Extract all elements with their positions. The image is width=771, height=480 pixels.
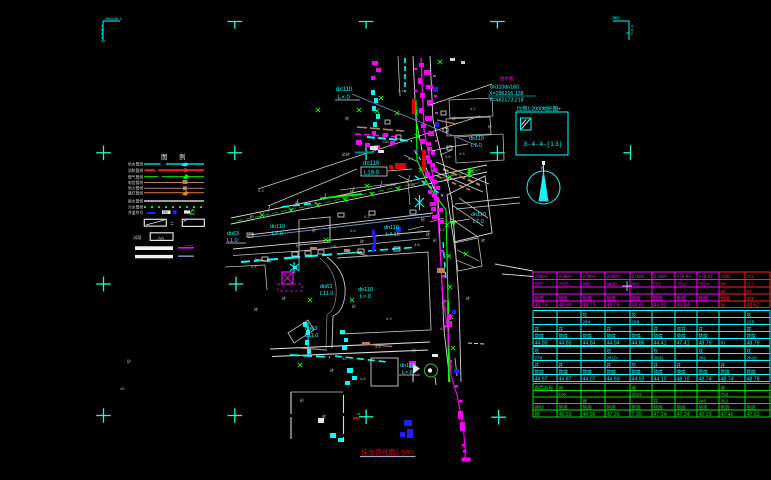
svg-text:GB: GB [383,139,389,144]
svg-text:砖: 砖 [559,385,564,392]
svg-text:管底: 管底 [654,404,664,411]
svg-text:47.41: 47.41 [677,341,690,347]
svg-text:48.62: 48.62 [747,303,760,309]
svg-text:577: 577 [535,282,543,287]
svg-text:管底: 管底 [535,369,545,376]
svg-text:管底: 管底 [721,404,731,411]
svg-text:砖: 砖 [426,231,430,237]
svg-text:44.92: 44.92 [654,303,667,309]
svg-text:井: 井 [654,398,659,405]
svg-text:752: 752 [721,392,729,397]
svg-text:坎: 坎 [632,312,637,319]
svg-text:管底: 管底 [699,295,709,302]
svg-text:4.6: 4.6 [350,228,356,233]
svg-text:井: 井 [559,326,564,333]
svg-text:管底: 管底 [632,295,642,302]
svg-text:GB: GB [331,244,337,249]
svg-text:47.29: 47.29 [699,412,712,418]
svg-text:砂: 砂 [296,242,300,248]
svg-text:962: 962 [721,399,729,404]
svg-text:给水管: 给水管 [500,75,514,82]
svg-text:砂砖: 砂砖 [342,151,350,157]
svg-text:管底: 管底 [654,333,664,340]
svg-text:管底: 管底 [677,404,687,411]
svg-text:管底: 管底 [632,369,642,376]
svg-text:砖: 砖 [345,115,349,121]
svg-text:791: 791 [654,282,662,287]
svg-text:7.09: 7.09 [632,412,642,418]
svg-text:7914: 7914 [699,282,710,287]
svg-text:38: 38 [721,289,727,294]
svg-text:761: 761 [747,274,755,279]
svg-text:管底: 管底 [632,333,642,340]
svg-text:48.79: 48.79 [699,341,712,347]
svg-text:dn63: dn63 [227,231,239,237]
svg-text:48.78: 48.78 [747,377,760,383]
svg-text:砂: 砂 [412,347,416,353]
svg-text:砂: 砂 [127,358,131,364]
svg-text:井: 井 [607,326,612,333]
svg-text:4.8: 4.8 [360,376,366,381]
svg-text:L11.0: L11.0 [305,333,318,339]
svg-text:225: 225 [747,320,755,325]
svg-text:管底: 管底 [699,369,709,376]
svg-text:279: 279 [535,356,543,361]
svg-text:dn110dn160: dn110dn160 [490,85,519,91]
svg-text:砂: 砂 [250,213,254,219]
svg-text:路面高程: 路面高程 [535,385,554,392]
svg-text:4.2: 4.2 [470,106,476,111]
svg-text:井盖符号: 井盖符号 [128,210,143,215]
svg-text:284: 284 [583,320,591,325]
svg-text:坎: 坎 [607,348,612,355]
svg-text:井: 井 [559,362,564,369]
svg-text:2: 2 [631,32,633,36]
svg-text:GB: GB [409,182,415,187]
svg-text:砖: 砖 [254,306,258,312]
svg-text:管底: 管底 [583,295,593,302]
svg-text:4.7: 4.7 [417,229,423,234]
svg-text:管底: 管底 [677,369,687,376]
svg-text:宽: 宽 [747,326,752,333]
svg-text:2863: 2863 [612,16,619,20]
svg-text:砖: 砖 [481,237,485,243]
svg-text:管底: 管底 [677,295,687,302]
svg-text:4.4: 4.4 [251,264,257,269]
svg-text:砖: 砖 [282,295,286,301]
svg-text:44.85: 44.85 [559,341,572,347]
svg-text:管底: 管底 [559,369,569,376]
svg-text:砖: 砖 [721,385,726,392]
svg-text:100: 100 [559,392,567,397]
svg-text:=: = [171,222,174,228]
svg-text:路灯管线: 路灯管线 [128,190,143,195]
svg-text:48.93: 48.93 [559,303,572,309]
svg-text:44.84: 44.84 [583,341,596,347]
svg-text:888: 888 [747,296,755,301]
svg-text:dn110: dn110 [270,224,285,230]
svg-text:87: 87 [747,289,753,294]
svg-text:47.63: 47.63 [747,412,760,418]
svg-text:47.40: 47.40 [721,412,734,418]
svg-text:雨水管线: 雨水管线 [128,199,143,204]
svg-text:管底: 管底 [747,333,757,340]
svg-text:井: 井 [699,326,704,333]
svg-text:管底: 管底 [583,333,593,340]
svg-text:管底: 管底 [747,404,757,411]
svg-text:图: 图 [161,153,168,161]
svg-text:L4.10: L4.10 [386,232,400,238]
svg-text:44.10: 44.10 [654,377,667,383]
svg-text:dn110: dn110 [336,87,353,93]
svg-text:管底: 管底 [677,333,687,340]
svg-text:管底: 管底 [559,295,569,302]
svg-text:砂: 砂 [421,216,425,222]
svg-text:管底: 管底 [607,369,617,376]
svg-text:井: 井 [654,326,659,333]
svg-text:管底: 管底 [607,295,617,302]
svg-text:井: 井 [677,362,682,369]
svg-text:井: 井 [721,362,726,369]
svg-text:井: 井 [607,362,612,369]
svg-text:7625: 7625 [559,282,570,287]
svg-text:坎: 坎 [632,362,637,369]
svg-text:44.93: 44.93 [607,377,620,383]
svg-text:4.8: 4.8 [390,182,396,187]
svg-text:48.74: 48.74 [699,377,712,383]
svg-text:48.74: 48.74 [721,377,734,383]
svg-text:L×.0: L×.0 [360,294,371,300]
svg-text:给水管线: 给水管线 [128,162,143,167]
svg-text:2+98A: 2+98A [559,274,573,279]
svg-text:4.2: 4.2 [439,227,445,232]
svg-text:48.10: 48.10 [677,377,690,383]
svg-text:砖: 砖 [535,410,540,418]
svg-text:坎: 坎 [699,348,704,355]
svg-text:Y=482173.218: Y=482173.218 [489,98,524,104]
svg-text:2+98A: 2+98A [535,274,549,279]
svg-text:dn63: dn63 [305,326,317,332]
svg-text:84: 84 [721,282,727,287]
svg-text:电力管线: 电力管线 [128,186,143,191]
svg-text:砖: 砖 [360,238,364,244]
svg-text:砖: 砖 [466,295,470,301]
svg-text:管底: 管底 [699,333,709,340]
svg-text:44.96: 44.96 [583,412,596,418]
svg-text:L7.0: L7.0 [471,143,482,149]
svg-text:3-4-4-[13]: 3-4-4-[13] [524,141,562,148]
svg-text:L7.0: L7.0 [473,219,484,225]
svg-text:9439: 9439 [607,282,618,287]
svg-text:井: 井 [654,362,659,369]
svg-text:AA: AA [158,235,164,240]
svg-text:砖: 砖 [330,367,334,373]
svg-text:2023: 2023 [632,392,643,397]
svg-text:4.8: 4.8 [414,242,420,247]
svg-text:消防管线: 消防管线 [128,168,143,173]
svg-text:管底: 管底 [583,404,593,411]
svg-text:管底: 管底 [747,369,757,376]
svg-text:0: 0 [101,36,103,40]
svg-text:砖: 砖 [312,227,316,233]
svg-text:坎: 坎 [535,348,540,355]
svg-text:挡墙: 挡墙 [721,295,731,302]
svg-text:砖: 砖 [295,200,299,206]
svg-text:坎: 坎 [654,348,659,355]
svg-text:砂: 砂 [300,397,304,403]
svg-text:管底: 管底 [607,333,617,340]
svg-text:dn110: dn110 [471,212,486,218]
svg-text:2831: 2831 [654,356,665,361]
svg-text:GB: GB [163,211,169,215]
svg-text:2+9.8A: 2+9.8A [677,274,693,279]
svg-text:44.84: 44.84 [677,303,690,309]
svg-text:4.3: 4.3 [364,214,370,219]
svg-text:dn110: dn110 [363,161,380,167]
svg-text:45: 45 [120,386,125,391]
svg-text:44.93: 44.93 [632,377,645,383]
svg-text:942: 942 [583,282,591,287]
svg-text:44.97: 44.97 [535,377,548,383]
svg-text:2+9.8T: 2+9.8T [699,274,714,279]
svg-text:管底: 管底 [583,369,593,376]
svg-text:管底: 管底 [654,295,664,302]
svg-text:管底: 管底 [559,404,569,411]
svg-text:坎: 坎 [583,312,588,319]
svg-text:井: 井 [535,362,540,369]
svg-text:电信管线: 电信管线 [128,180,143,185]
svg-text:940: 940 [699,399,707,404]
svg-text:dn63: dn63 [320,284,332,290]
svg-text:砂: 砂 [350,188,354,194]
svg-text:dn110: dn110 [358,287,373,293]
svg-text:4.6: 4.6 [375,344,381,349]
svg-text:砖: 砖 [322,413,326,419]
svg-text:47.24: 47.24 [654,412,667,418]
svg-text:48.74: 48.74 [535,303,548,309]
svg-text:48.81: 48.81 [632,303,645,309]
svg-text:管底: 管底 [721,369,731,376]
svg-text:比例1:2000地形图+: 比例1:2000地形图+ [517,105,561,113]
svg-text:46.93: 46.93 [559,412,572,418]
svg-text:2+98X: 2+98X [654,274,667,279]
svg-text:44.94: 44.94 [607,341,620,347]
svg-text:管底: 管底 [699,404,709,411]
svg-text:4.4: 4.4 [440,326,446,331]
svg-text:管底: 管底 [559,333,569,340]
svg-text:44.87: 44.87 [559,377,572,383]
svg-text:砂: 砂 [488,123,492,129]
svg-text:砖: 砖 [632,385,637,392]
svg-text:288: 288 [632,320,640,325]
svg-text:4.X: 4.X [258,188,264,193]
svg-text:综合管线图1:500: 综合管线图1:500 [361,448,413,457]
svg-text:dn110: dn110 [469,136,484,142]
svg-text:L×.0: L×.0 [272,231,283,237]
svg-text:dn110: dn110 [384,225,399,231]
svg-text:4.6: 4.6 [445,154,451,159]
svg-text:管底: 管底 [654,369,664,376]
svg-text:491: 491 [632,282,640,287]
svg-text:7682: 7682 [721,274,732,279]
svg-text:44.95: 44.95 [535,341,548,347]
svg-text:2810: 2810 [607,356,618,361]
svg-text:管底: 管底 [607,404,617,411]
svg-text:管底: 管底 [535,295,545,302]
svg-text:L19.0: L19.0 [364,171,380,177]
svg-text:砖: 砖 [452,115,456,121]
svg-text:89: 89 [721,303,727,308]
svg-text:7LI: 7LI [747,282,753,287]
svg-text:7912: 7912 [677,282,688,287]
svg-text:47.34: 47.34 [677,412,690,418]
svg-text:2+98T: 2+98T [607,274,620,279]
svg-text:管底: 管底 [535,333,545,340]
svg-text:燃气管线: 燃气管线 [128,175,143,180]
svg-text:4.1: 4.1 [398,88,404,93]
svg-text:282: 282 [699,356,707,361]
svg-text:2+98X: 2+98X [632,274,645,279]
svg-text:L11.0: L11.0 [320,291,333,297]
svg-text:44.07: 44.07 [583,377,596,383]
svg-text:试段: 试段 [133,234,142,241]
svg-text:48.79: 48.79 [747,341,760,347]
svg-text:砂: 砂 [352,303,356,309]
svg-text:4.5: 4.5 [459,151,465,156]
svg-text:砖: 砖 [583,398,588,405]
svg-text:砖砂: 砖砂 [535,404,545,411]
svg-text:44: 44 [342,356,347,361]
svg-text:井: 井 [535,326,540,333]
svg-text:坎: 坎 [747,348,752,355]
svg-text:双井: 双井 [677,326,687,333]
svg-text:坎: 坎 [747,312,752,319]
svg-text:m: m [721,341,725,347]
svg-text:管底: 管底 [632,404,642,411]
svg-text:47.26: 47.26 [607,412,620,418]
svg-text:4.9: 4.9 [386,316,392,321]
svg-text:286245.3: 286245.3 [105,16,122,21]
svg-text:44.86: 44.86 [632,341,645,347]
svg-text:44.41: 44.41 [654,341,667,347]
svg-text:2+98A: 2+98A [583,274,597,279]
svg-text:砂: 砂 [433,237,437,243]
svg-text:dn110: dn110 [400,363,415,369]
svg-text:污水管线: 污水管线 [128,205,143,210]
svg-text:48.76: 48.76 [607,303,620,309]
svg-text:48.73: 48.73 [583,303,596,309]
svg-text:例: 例 [179,152,186,161]
svg-text:2818: 2818 [747,356,758,361]
